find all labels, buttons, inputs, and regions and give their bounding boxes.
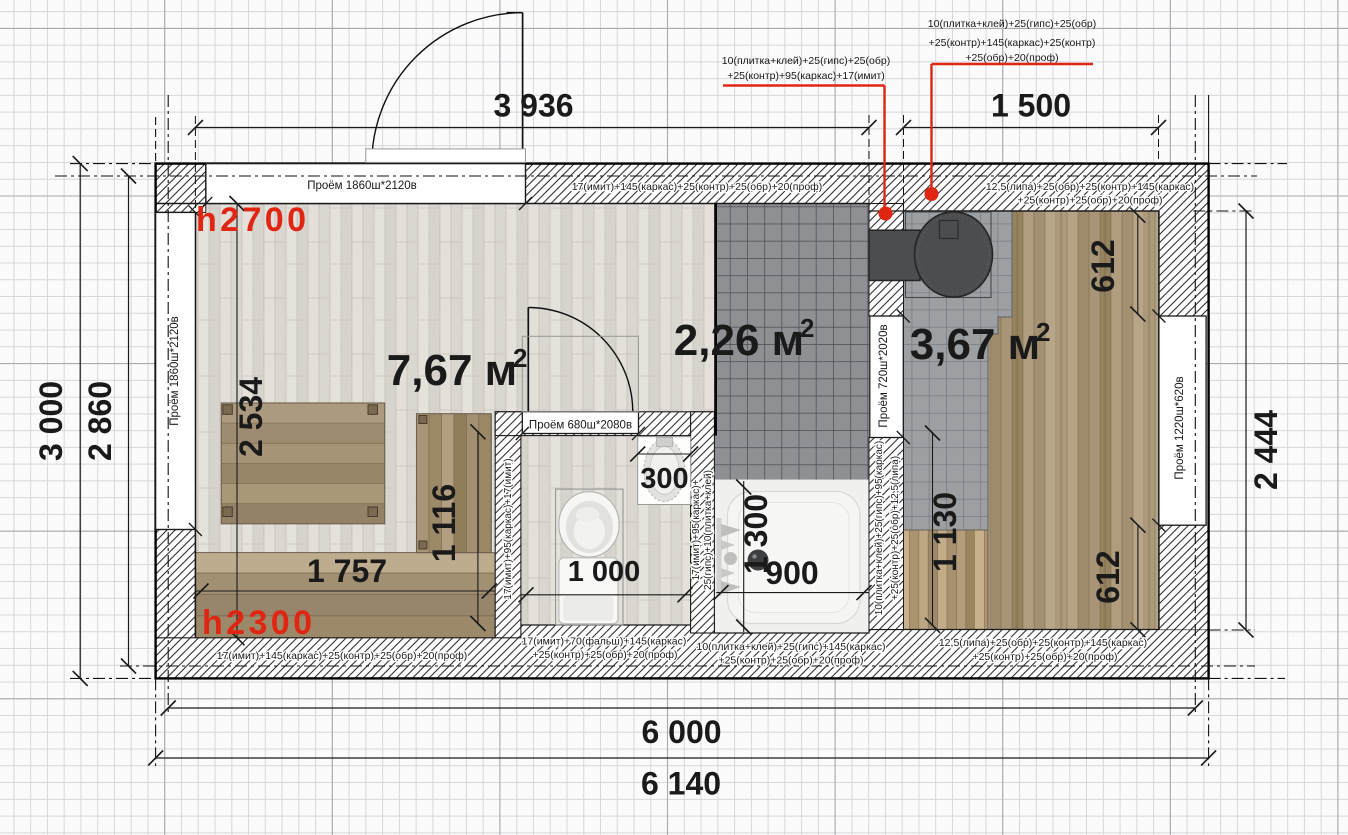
- svg-text:1 757: 1 757: [307, 553, 387, 589]
- svg-text:2 534: 2 534: [233, 377, 269, 457]
- svg-text:612: 612: [1090, 550, 1126, 603]
- svg-text:900: 900: [765, 555, 818, 591]
- svg-text:17(имит)+95(каркас)+17(имит): 17(имит)+95(каркас)+17(имит): [503, 458, 514, 599]
- svg-text:1 116: 1 116: [426, 484, 462, 562]
- svg-text:+25(контр)+25(обр)+20(проф): +25(контр)+25(обр)+20(проф): [972, 651, 1117, 663]
- svg-text:2: 2: [800, 313, 814, 343]
- svg-text:+25(обр)+20(проф): +25(обр)+20(проф): [965, 52, 1058, 64]
- svg-text:2 860: 2 860: [82, 381, 118, 461]
- svg-text:+25(контр)+95(каркас)+17(имит): +25(контр)+95(каркас)+17(имит): [727, 70, 885, 82]
- svg-text:+25(контр)+25(обр)+20(проф): +25(контр)+25(обр)+20(проф): [1017, 195, 1162, 207]
- svg-text:6 000: 6 000: [641, 714, 721, 750]
- svg-text:2: 2: [513, 343, 527, 373]
- svg-text:+25(контр)+25(обр)+20(проф): +25(контр)+25(обр)+20(проф): [718, 655, 863, 667]
- svg-text:17(имит)+145(каркас)+25(контр): 17(имит)+145(каркас)+25(контр)+25(обр)+2…: [572, 181, 823, 193]
- svg-text:Проём 1860ш*2120в: Проём 1860ш*2120в: [307, 180, 417, 192]
- svg-text:2: 2: [1036, 317, 1050, 347]
- svg-text:2,26 м: 2,26 м: [674, 316, 804, 365]
- svg-text:6 140: 6 140: [641, 766, 721, 802]
- svg-text:1 000: 1 000: [568, 556, 641, 588]
- svg-text:7,67 м: 7,67 м: [387, 346, 517, 395]
- svg-text:h2300: h2300: [202, 604, 315, 642]
- svg-text:3 000: 3 000: [33, 381, 69, 461]
- svg-text:612: 612: [1085, 239, 1121, 292]
- svg-text:17(имит)+145(каркас)+25(контр): 17(имит)+145(каркас)+25(контр)+25(обр)+2…: [217, 650, 468, 662]
- svg-text:2 444: 2 444: [1248, 410, 1284, 490]
- svg-text:10(плитка+клей)+25(гипс)+25(об: 10(плитка+клей)+25(гипс)+25(обр): [722, 55, 890, 67]
- svg-text:Проём 1860ш*2120в: Проём 1860ш*2120в: [169, 316, 181, 426]
- svg-text:h2700: h2700: [196, 201, 309, 239]
- svg-text:+25(контр)+25(обр)+20(проф): +25(контр)+25(обр)+20(проф): [532, 649, 677, 661]
- svg-text:+25(контр)+145(каркас)+25(конт: +25(контр)+145(каркас)+25(контр): [929, 37, 1096, 49]
- svg-text:25(гипс)+10(плитка+клей): 25(гипс)+10(плитка+клей): [703, 470, 714, 590]
- svg-text:12,5(липа)+25(обр)+25(контр)+1: 12,5(липа)+25(обр)+25(контр)+145(каркас): [939, 637, 1147, 649]
- svg-text:10(плитка+клей)+25(гипс)+145(к: 10(плитка+клей)+25(гипс)+145(каркас): [697, 641, 886, 653]
- svg-text:Проём 1220ш*620в: Проём 1220ш*620в: [1174, 376, 1186, 479]
- svg-text:17(имит)+70(фальш)+145(каркас): 17(имит)+70(фальш)+145(каркас): [522, 636, 687, 648]
- svg-text:3,67 м: 3,67 м: [910, 320, 1040, 369]
- svg-text:10(плитка+клей)+25(гипс)+95(ка: 10(плитка+клей)+25(гипс)+95(каркас): [874, 441, 885, 615]
- svg-text:1 500: 1 500: [991, 88, 1071, 124]
- svg-text:12,5(липа)+25(обр)+25(контр)+1: 12,5(липа)+25(обр)+25(контр)+145(каркас): [986, 181, 1194, 193]
- svg-text:Проём 720ш*2020в: Проём 720ш*2020в: [878, 324, 890, 427]
- svg-text:1 130: 1 130: [927, 492, 963, 572]
- svg-text:17(имит)+95(каркас)+: 17(имит)+95(каркас)+: [691, 479, 702, 580]
- svg-text:Проём 680ш*2080в: Проём 680ш*2080в: [529, 420, 632, 432]
- svg-text:10(плитка+клей)+25(гипс)+25(об: 10(плитка+клей)+25(гипс)+25(обр): [928, 18, 1096, 30]
- svg-text:300: 300: [640, 463, 688, 495]
- svg-text:3 936: 3 936: [493, 88, 573, 124]
- svg-text:+25(контр)+25(обр)+12,5(липа): +25(контр)+25(обр)+12,5(липа): [889, 456, 901, 600]
